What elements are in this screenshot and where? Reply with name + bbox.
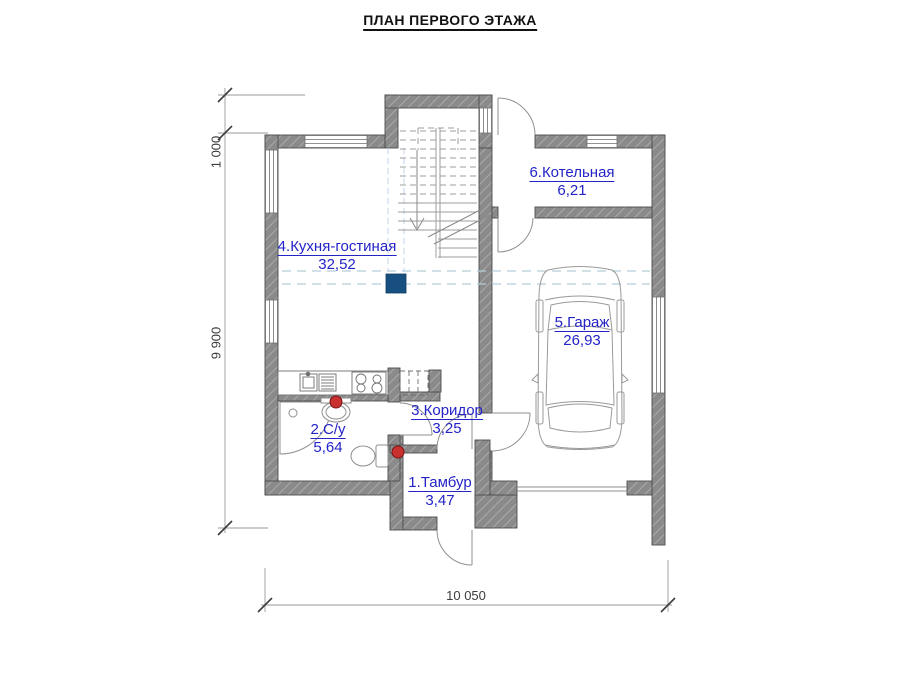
window-top-boiler — [587, 136, 617, 148]
stair-direction-arrow — [410, 150, 424, 230]
floor-plan-page: ПЛАН ПЕРВОГО ЭТАЖА 4.Кухня-гостиная 32,5… — [0, 0, 899, 675]
window-top-kitchen — [305, 136, 367, 148]
plumbing-riser-bathroom — [330, 396, 342, 408]
room-label-kotelnaya: 6.Котельная 6,21 — [529, 164, 614, 199]
room-label-koridor: 3.Коридор 3,25 — [411, 402, 483, 437]
dimension-bottom: 10 050 — [446, 588, 486, 603]
toilet — [351, 445, 388, 467]
car-top-view — [532, 267, 628, 450]
window-left-lower — [266, 300, 278, 343]
door-corridor-garage — [492, 413, 530, 451]
room-label-garazh: 5.Гараж 26,93 — [555, 314, 610, 349]
door-entrance — [437, 530, 472, 565]
dimension-left-main: 9 900 — [209, 327, 224, 360]
stairs — [398, 128, 490, 258]
door-boiler-exterior — [498, 98, 535, 135]
plumbing-riser-vestibule — [392, 446, 404, 458]
kitchen-appliance-dashed — [400, 371, 428, 395]
kitchen-drainer — [319, 374, 336, 391]
room-label-kuhnya-gostinaya: 4.Кухня-гостиная 32,52 — [278, 238, 397, 273]
room-label-su: 2.С/у 5,64 — [310, 421, 345, 456]
window-garage-right — [653, 297, 665, 393]
floor-plan-drawing — [0, 0, 899, 675]
garage-gate — [517, 487, 627, 491]
dimension-left-top: 1 000 — [209, 136, 224, 169]
kitchen-sink — [300, 372, 317, 391]
window-stair-bump — [480, 108, 492, 133]
kitchen-counter — [278, 371, 428, 395]
room-label-tambur: 1.Тамбур 3,47 — [408, 474, 471, 509]
window-left-upper — [266, 150, 278, 213]
door-boiler-garage — [498, 218, 533, 252]
chimney-marker — [386, 274, 406, 293]
plan-title: ПЛАН ПЕРВОГО ЭТАЖА — [363, 12, 537, 28]
